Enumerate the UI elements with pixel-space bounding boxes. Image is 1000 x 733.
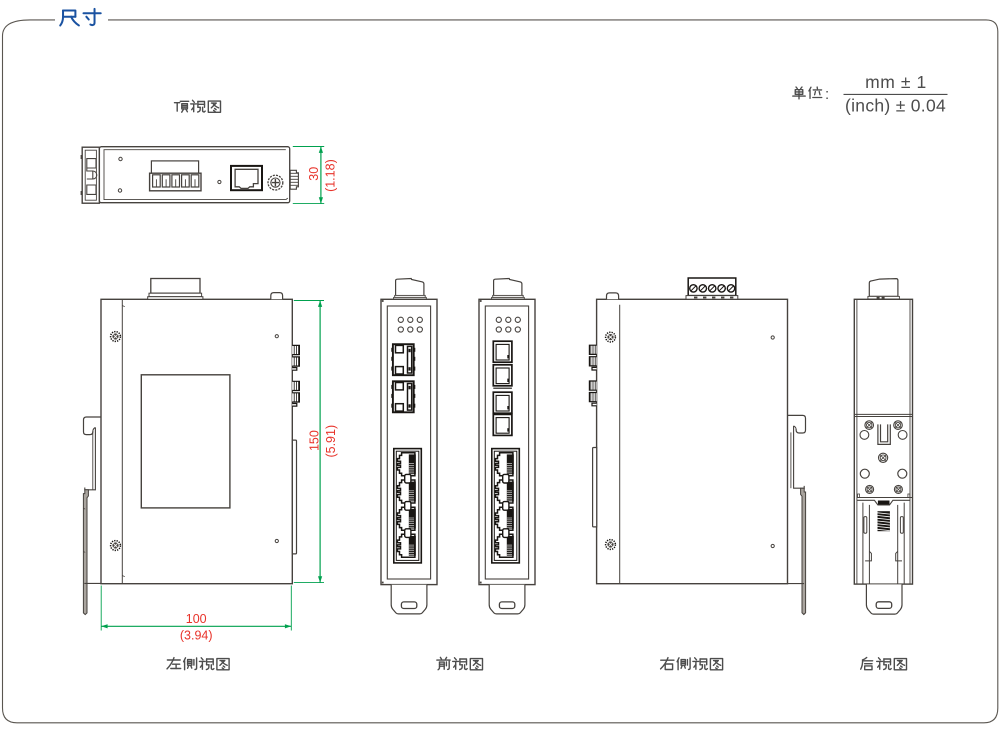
svg-text:100: 100 [186, 612, 207, 626]
svg-text:30: 30 [307, 167, 321, 181]
svg-text:(1.18): (1.18) [324, 159, 338, 192]
svg-text:(5.91): (5.91) [324, 425, 338, 458]
svg-text::: : [825, 86, 829, 103]
svg-text:(inch) ± 0.04: (inch) ± 0.04 [845, 96, 946, 116]
svg-text:(3.94): (3.94) [180, 629, 213, 643]
svg-text:mm ± 1: mm ± 1 [865, 72, 927, 92]
svg-text:150: 150 [307, 430, 321, 451]
